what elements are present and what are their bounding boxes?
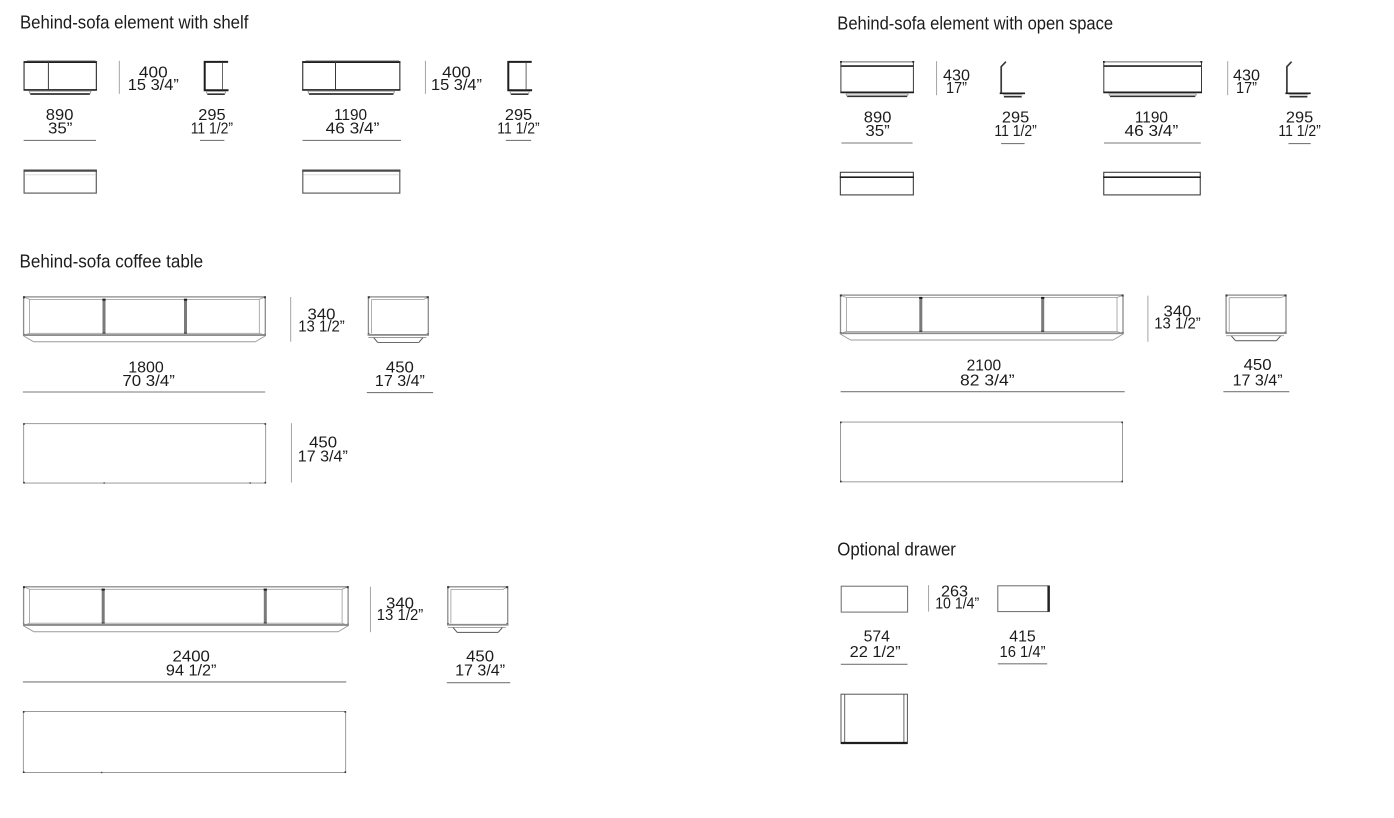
svg-text:35”: 35”	[865, 123, 889, 140]
svg-text:15 3/4”: 15 3/4”	[128, 77, 179, 94]
svg-text:17”: 17”	[1236, 80, 1257, 97]
svg-text:70 3/4”: 70 3/4”	[122, 373, 175, 390]
svg-text:46 3/4”: 46 3/4”	[1125, 123, 1179, 140]
svg-text:13 1/2”: 13 1/2”	[298, 319, 345, 336]
svg-text:Behind-sofa element with shelf: Behind-sofa element with shelf	[20, 13, 249, 33]
svg-text:11 1/2”: 11 1/2”	[191, 120, 233, 137]
svg-text:17 3/4”: 17 3/4”	[1233, 372, 1283, 389]
svg-text:10 1/4”: 10 1/4”	[935, 595, 979, 612]
svg-text:82 3/4”: 82 3/4”	[960, 372, 1015, 389]
svg-text:16 1/4”: 16 1/4”	[1000, 644, 1046, 661]
svg-text:94 1/2”: 94 1/2”	[166, 662, 217, 679]
svg-text:Behind-sofa coffee table: Behind-sofa coffee table	[20, 251, 204, 271]
svg-text:Behind-sofa element with open: Behind-sofa element with open space	[837, 13, 1113, 33]
svg-text:Optional drawer: Optional drawer	[837, 540, 956, 560]
svg-text:46 3/4”: 46 3/4”	[326, 120, 380, 137]
svg-text:17 3/4”: 17 3/4”	[298, 449, 348, 466]
svg-text:22 1/2”: 22 1/2”	[850, 644, 901, 661]
svg-text:35”: 35”	[48, 120, 72, 137]
svg-text:11 1/2”: 11 1/2”	[497, 120, 539, 137]
svg-text:13 1/2”: 13 1/2”	[1154, 316, 1201, 333]
svg-text:15 3/4”: 15 3/4”	[431, 77, 482, 94]
svg-text:13 1/2”: 13 1/2”	[377, 607, 424, 624]
svg-text:17”: 17”	[946, 80, 967, 97]
svg-text:17 3/4”: 17 3/4”	[375, 373, 425, 390]
svg-text:11 1/2”: 11 1/2”	[994, 123, 1036, 140]
svg-text:17 3/4”: 17 3/4”	[455, 662, 505, 679]
svg-text:11 1/2”: 11 1/2”	[1278, 123, 1320, 140]
